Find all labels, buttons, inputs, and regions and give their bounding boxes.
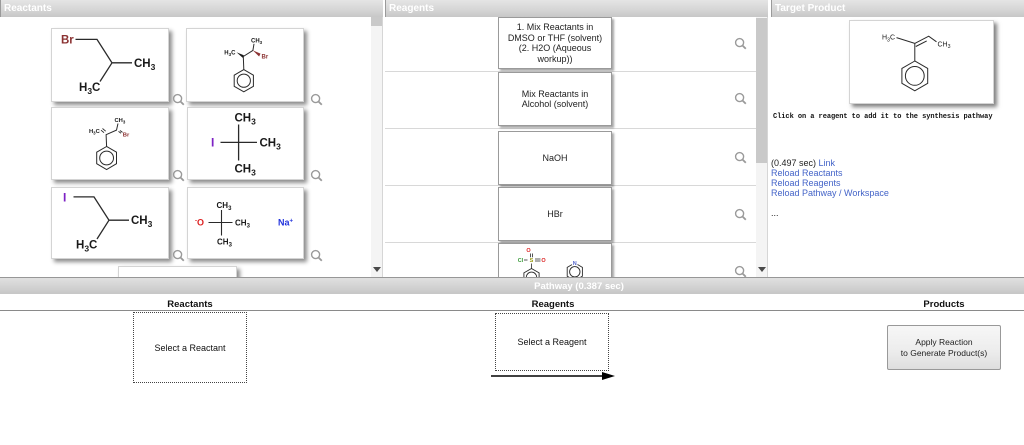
svg-text:CH3: CH3 <box>938 42 951 51</box>
svg-text:CH3: CH3 <box>251 38 263 45</box>
svg-text:Br: Br <box>61 35 74 47</box>
svg-text:N: N <box>573 261 577 267</box>
svg-text:CH3: CH3 <box>260 137 282 151</box>
svg-text:CH3: CH3 <box>235 113 257 127</box>
svg-text:Na+: Na+ <box>278 218 294 228</box>
svg-text:O: O <box>526 248 531 254</box>
svg-text:CH3: CH3 <box>115 118 126 124</box>
svg-text:CH3: CH3 <box>235 164 257 178</box>
svg-text:CH3: CH3 <box>131 215 153 229</box>
svg-text:H3C: H3C <box>79 82 100 96</box>
svg-text:CH3: CH3 <box>217 201 233 212</box>
svg-text:H3C: H3C <box>76 240 97 254</box>
svg-text:O: O <box>541 258 546 264</box>
svg-text:I: I <box>63 191 66 205</box>
svg-text:H3C: H3C <box>882 35 895 44</box>
svg-text:Cl: Cl <box>518 258 524 264</box>
svg-text:-O: -O <box>195 218 204 228</box>
svg-text:S: S <box>530 258 534 264</box>
svg-text:Br: Br <box>123 132 130 138</box>
svg-text:I: I <box>211 136 214 150</box>
svg-text:CH3: CH3 <box>134 58 156 72</box>
svg-text:H3C: H3C <box>89 129 101 135</box>
svg-text:CH3: CH3 <box>217 238 233 249</box>
svg-text:H3C: H3C <box>224 50 236 57</box>
svg-text:Br: Br <box>262 55 269 61</box>
svg-text:CH3: CH3 <box>235 219 251 230</box>
